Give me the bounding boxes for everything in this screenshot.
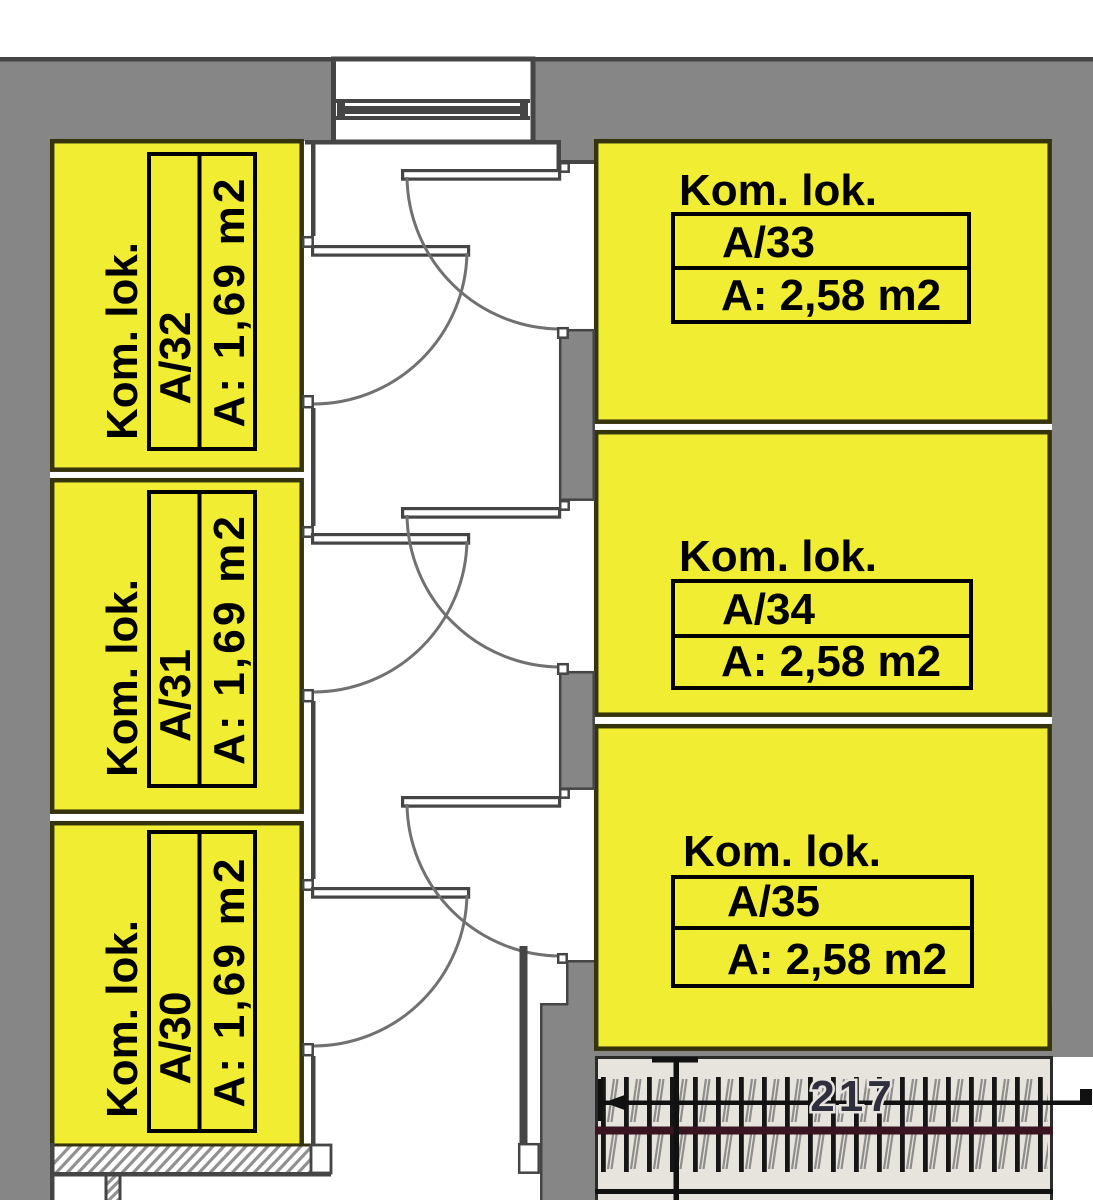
svg-text:A: 1,69 m2: A: 1,69 m2 (205, 513, 254, 765)
svg-text:A/31: A/31 (151, 649, 200, 742)
svg-text:A: 2,58 m2: A: 2,58 m2 (727, 935, 947, 984)
svg-text:A: 2,58 m2: A: 2,58 m2 (721, 637, 941, 686)
svg-text:A/33: A/33 (722, 218, 815, 267)
svg-text:A/34: A/34 (722, 585, 815, 634)
svg-text:A: 1,69 m2: A: 1,69 m2 (205, 175, 254, 427)
svg-text:A/35: A/35 (727, 877, 820, 926)
svg-text:A: 1,69 m2: A: 1,69 m2 (205, 855, 254, 1107)
svg-text:Kom. lok.: Kom. lok. (679, 166, 877, 215)
svg-text:A/32: A/32 (151, 312, 200, 405)
svg-text:Kom. lok.: Kom. lok. (683, 827, 881, 876)
svg-text:A: 2,58 m2: A: 2,58 m2 (721, 271, 941, 320)
svg-text:Kom. lok.: Kom. lok. (98, 242, 147, 440)
svg-text:Kom. lok.: Kom. lok. (98, 920, 147, 1118)
svg-text:217: 217 (810, 1072, 895, 1121)
svg-text:Kom. lok.: Kom. lok. (98, 579, 147, 777)
svg-text:Kom. lok.: Kom. lok. (679, 532, 877, 581)
svg-text:A/30: A/30 (151, 992, 200, 1085)
